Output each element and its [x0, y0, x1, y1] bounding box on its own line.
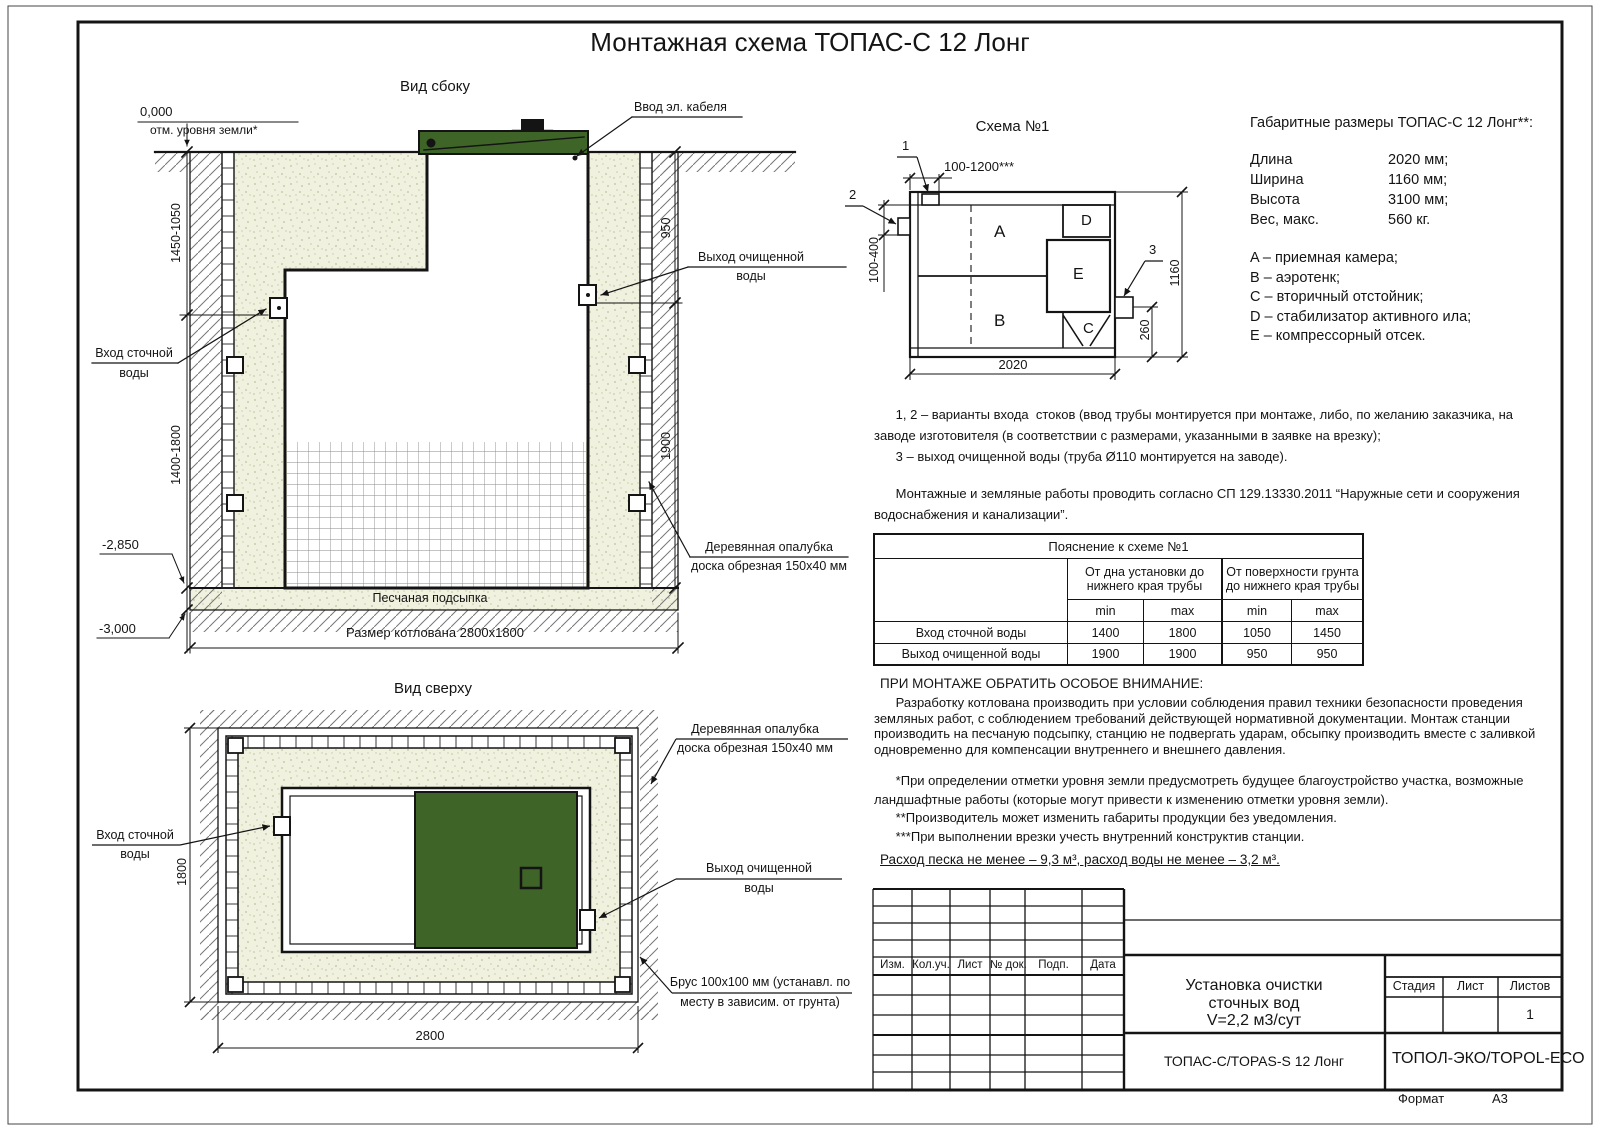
schema-pipe-2 — [898, 218, 910, 235]
soil-hatch — [200, 710, 658, 728]
outlet-pipe-plan — [580, 910, 595, 930]
table-row: Вход сточной воды 1400 1800 1050 1450 — [874, 622, 1363, 644]
sheets-label: Листов — [1498, 979, 1562, 993]
outlet-label-top: Выход очищенной — [676, 861, 842, 875]
spec-label-width: Ширина — [1250, 172, 1304, 189]
dim-1450-1050: 1450-1050 — [169, 203, 183, 263]
inlet-label-side-2: воды — [88, 366, 180, 380]
sp-note: Монтажные и земляные работы проводить со… — [874, 483, 1564, 525]
doc-title: Установка очистки сточных вод V=2,2 м3/с… — [1134, 977, 1374, 1030]
specs-heading: Габаритные размеры ТОПАС-С 12 Лонг**: — [1250, 115, 1533, 132]
soil-hatch — [190, 152, 222, 610]
spec-label-length: Длина — [1250, 152, 1292, 169]
pipes-note: 1, 2 – варианты входа стоков (ввод трубы… — [874, 404, 1564, 467]
inlet-label-side: Вход сточной — [88, 346, 180, 360]
pipe-mark-1: 1 — [902, 139, 909, 154]
legend-d: D – стабилизатор активного ила; — [1250, 309, 1471, 326]
mark-2850: -2,850 — [102, 538, 139, 553]
table-empty-cell — [874, 559, 1068, 622]
tank-lid — [419, 131, 588, 154]
soil-hatch — [200, 1002, 658, 1020]
soil-hatch — [200, 710, 218, 1020]
row-inlet-v3: 1050 — [1222, 622, 1292, 644]
row-outlet-v2: 1900 — [1144, 644, 1223, 666]
rev-header-izm: Изм. — [873, 959, 912, 972]
row-inlet-v2: 1800 — [1144, 622, 1223, 644]
rev-header-ndok: № док. — [990, 959, 1025, 972]
dim-1900: 1900 — [659, 432, 673, 460]
legend-a: A – приемная камера; — [1250, 250, 1398, 267]
explanation-table: Пояснение к схеме №1 От дна установки до… — [873, 533, 1364, 666]
tank-lid-plan — [415, 792, 577, 948]
page-title: Монтажная схема ТОПАС-С 12 Лонг — [460, 28, 1160, 58]
tank-lower-grid — [287, 442, 586, 588]
row-outlet-label: Выход очищенной воды — [874, 644, 1068, 666]
formwork-label-side: Деревянная опалубка — [686, 540, 852, 554]
table-colgroup-1: От дна установки до нижнего края трубы — [1068, 559, 1223, 600]
schema-dim-outlet: 260 — [1138, 320, 1152, 341]
legend-b: B – аэротенк; — [1250, 270, 1340, 287]
table-colgroup-2: От поверхности грунта до нижнего края тр… — [1222, 559, 1363, 600]
compartment-c-label: C — [1083, 320, 1094, 337]
inlet-pipe-plan — [274, 817, 290, 835]
dim-1400-1800: 1400-1800 — [169, 425, 183, 485]
sand-bedding-label: Песчаная подсыпка — [350, 591, 510, 605]
table-min-2: min — [1222, 600, 1292, 622]
spec-label-height: Высота — [1250, 192, 1300, 209]
side-view-title: Вид сбоку — [365, 78, 505, 95]
timber-label: Брус 100х100 мм (устанавл. по — [660, 975, 860, 989]
schema-dim-top: 100-1200*** — [944, 160, 1014, 175]
outlet-label-side: Выход очищенной — [683, 250, 819, 264]
rev-header-podp: Подп. — [1025, 959, 1082, 972]
outlet-label-top-2: воды — [676, 881, 842, 895]
pit-size-label: Размер котлована 2800х1800 — [300, 626, 570, 641]
compartment-d-label: D — [1081, 212, 1092, 229]
spec-value-width: 1160 мм; — [1388, 172, 1447, 189]
table-max-1: max — [1144, 600, 1223, 622]
attention-heading: ПРИ МОНТАЖЕ ОБРАТИТЬ ОСОБОЕ ВНИМАНИЕ: — [880, 676, 1203, 692]
compartment-e-label: E — [1073, 266, 1084, 284]
company-label: ТОПОЛ-ЭКО/TOPOL-ECO — [1392, 1050, 1585, 1068]
formwork-label-side-2: доска обрезная 150х40 мм — [672, 559, 866, 573]
spec-value-weight: 560 кг. — [1388, 212, 1430, 229]
sheets-value: 1 — [1498, 1006, 1562, 1022]
row-outlet-v3: 950 — [1222, 644, 1292, 666]
sheet-label: Лист — [1443, 979, 1498, 993]
spec-value-height: 3100 мм; — [1388, 192, 1448, 209]
table-title: Пояснение к схеме №1 — [874, 534, 1363, 559]
soil-hatch — [652, 152, 795, 172]
legend-e: E – компрессорный отсек. — [1250, 328, 1426, 345]
schema-pipe-3 — [1115, 297, 1133, 318]
format-label: Формат — [1398, 1092, 1444, 1107]
cable-entry-label: Ввод эл. кабеля — [634, 100, 727, 114]
lid-cap — [521, 119, 544, 130]
zero-mark: 0,000 — [140, 105, 173, 120]
schema-dim-left: 100-400 — [867, 237, 881, 283]
formwork-label-top: Деревянная опалубка — [670, 722, 840, 736]
formwork-label-top-2: доска обрезная 150х40 мм — [656, 741, 854, 755]
row-outlet-v4: 950 — [1292, 644, 1364, 666]
rev-header-data: Дата — [1082, 959, 1124, 972]
inlet-label-top: Вход сточной — [88, 828, 182, 842]
spec-value-length: 2020 мм; — [1388, 152, 1448, 169]
table-max-2: max — [1292, 600, 1364, 622]
drawing-page: Монтажная схема ТОПАС-С 12 Лонг Вид сбок… — [0, 0, 1600, 1131]
format-value: А3 — [1492, 1092, 1508, 1107]
rev-header-list: Лист — [950, 959, 990, 972]
legend-c: C – вторичный отстойник; — [1250, 289, 1423, 306]
timber-label-2: месту в зависим. от грунта) — [660, 995, 860, 1009]
outlet-label-side-2: воды — [683, 269, 819, 283]
dim-950: 950 — [659, 218, 673, 239]
top-view-title: Вид сверху — [368, 680, 498, 697]
schema-title: Схема №1 — [950, 118, 1075, 135]
schema-pipe-1 — [922, 194, 939, 205]
spec-label-weight: Вес, макс. — [1250, 212, 1319, 229]
schema-dim-bottom: 2020 — [984, 358, 1042, 373]
rev-header-koluch: Кол.уч. — [912, 959, 950, 972]
row-inlet-v1: 1400 — [1068, 622, 1144, 644]
row-inlet-label: Вход сточной воды — [874, 622, 1068, 644]
table-min-1: min — [1068, 600, 1144, 622]
attention-body: Разработку котлована производить при усл… — [874, 695, 1569, 757]
model-label: ТОПАС-С/TOPAS-S 12 Лонг — [1134, 1053, 1374, 1069]
pipe-mark-2: 2 — [849, 188, 856, 203]
dim-2800: 2800 — [390, 1029, 470, 1044]
pipe-mark-3: 3 — [1149, 243, 1156, 258]
stage-label: Стадия — [1385, 979, 1443, 993]
consumption-note: Расход песка не менее – 9,3 м³, расход в… — [880, 852, 1280, 868]
inlet-label-top-2: воды — [88, 847, 182, 861]
asterisk-notes: *При определении отметки уровня земли пр… — [874, 772, 1569, 846]
row-inlet-v4: 1450 — [1292, 622, 1364, 644]
compartment-a-label: A — [994, 222, 1005, 242]
mark-3000: -3,000 — [99, 622, 136, 637]
row-outlet-v1: 1900 — [1068, 644, 1144, 666]
table-row: Выход очищенной воды 1900 1900 950 950 — [874, 644, 1363, 666]
schema-1 — [845, 157, 1188, 380]
dim-1800: 1800 — [175, 858, 189, 886]
schema-dim-right: 1160 — [1168, 260, 1182, 287]
ground-level-note: отм. уровня земли* — [150, 124, 258, 138]
compartment-b-label: B — [994, 311, 1005, 331]
